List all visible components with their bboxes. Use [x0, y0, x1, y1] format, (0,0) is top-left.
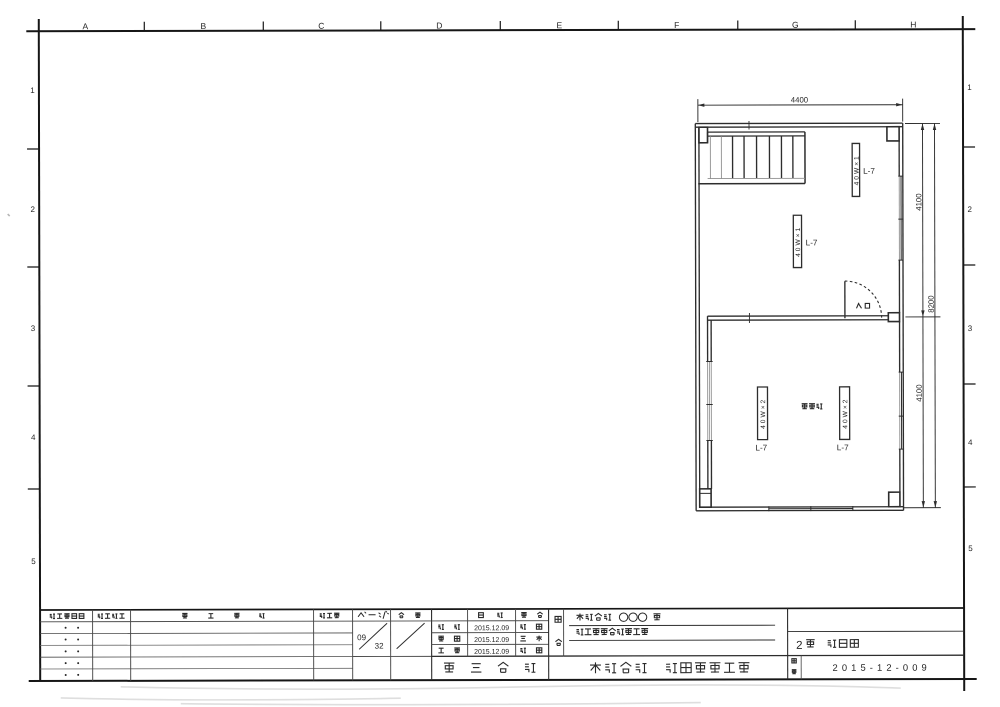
svg-text:H: H	[910, 19, 916, 29]
svg-text:2015-12-009: 2015-12-009	[833, 662, 931, 673]
svg-text:2015.12.09: 2015.12.09	[474, 625, 509, 632]
svg-text:D: D	[436, 21, 442, 31]
svg-text:2015.12.09: 2015.12.09	[474, 637, 509, 644]
svg-text:C: C	[318, 21, 324, 31]
svg-text:40W×2: 40W×2	[842, 398, 849, 429]
svg-text:40W×1: 40W×1	[854, 154, 861, 185]
svg-text:5: 5	[968, 544, 973, 553]
svg-text:1: 1	[967, 83, 972, 92]
svg-text:L-7: L-7	[837, 443, 849, 452]
svg-text:L-7: L-7	[806, 238, 818, 247]
svg-text:2015.12.09: 2015.12.09	[474, 649, 509, 656]
svg-text:3: 3	[968, 324, 973, 333]
svg-text:4100: 4100	[914, 193, 923, 211]
svg-text:A: A	[82, 21, 88, 31]
svg-text:4: 4	[31, 433, 36, 442]
svg-text:L-7: L-7	[755, 443, 767, 452]
svg-text:4400: 4400	[791, 96, 809, 105]
svg-text:L-7: L-7	[863, 167, 875, 176]
svg-text:5: 5	[31, 557, 36, 566]
svg-text:2: 2	[796, 640, 802, 652]
svg-text:G: G	[792, 20, 799, 30]
svg-text:8200: 8200	[927, 295, 936, 313]
svg-text:2: 2	[30, 205, 35, 214]
svg-text:09: 09	[357, 633, 366, 642]
svg-text:3: 3	[31, 324, 36, 333]
svg-text:B: B	[200, 21, 206, 31]
svg-text:4: 4	[968, 438, 973, 447]
svg-text:40W×1: 40W×1	[795, 226, 802, 257]
svg-text:2: 2	[967, 205, 972, 214]
svg-text:32: 32	[375, 642, 384, 651]
svg-text:F: F	[674, 20, 679, 30]
svg-text:E: E	[556, 20, 562, 30]
svg-text:4100: 4100	[915, 384, 924, 402]
svg-text:1: 1	[30, 86, 35, 95]
svg-text:40W×2: 40W×2	[760, 398, 767, 429]
